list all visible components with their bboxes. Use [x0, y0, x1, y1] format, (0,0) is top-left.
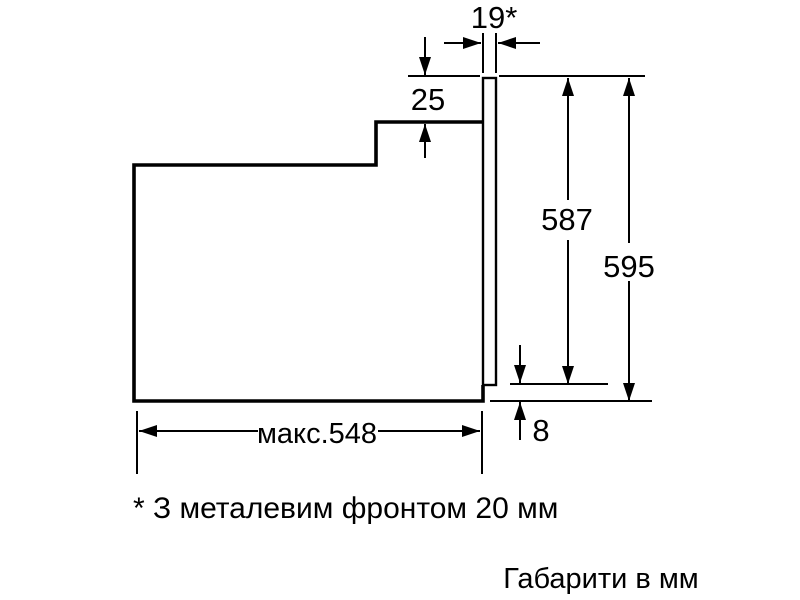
total-height-label: 595	[603, 249, 655, 284]
units-caption: Габарити в мм	[503, 563, 698, 595]
bottom-lip-label: 8	[532, 413, 549, 448]
oven-front-panel	[483, 78, 496, 385]
top-step-label: 25	[411, 82, 445, 117]
metal-front-footnote: * З металевим фронтом 20 мм	[133, 492, 558, 525]
oven-dimension-drawing-page: 19* 25 587 595 8 макс.548 * З металевим …	[0, 0, 800, 600]
front-height-label: 587	[541, 202, 593, 237]
max-depth-label: макс.548	[257, 418, 377, 450]
front-thickness-label: 19*	[471, 0, 518, 35]
oven-body-outline	[134, 122, 483, 401]
oven-dimension-drawing: 19* 25 587 595 8 макс.548 * З металевим …	[0, 0, 800, 600]
